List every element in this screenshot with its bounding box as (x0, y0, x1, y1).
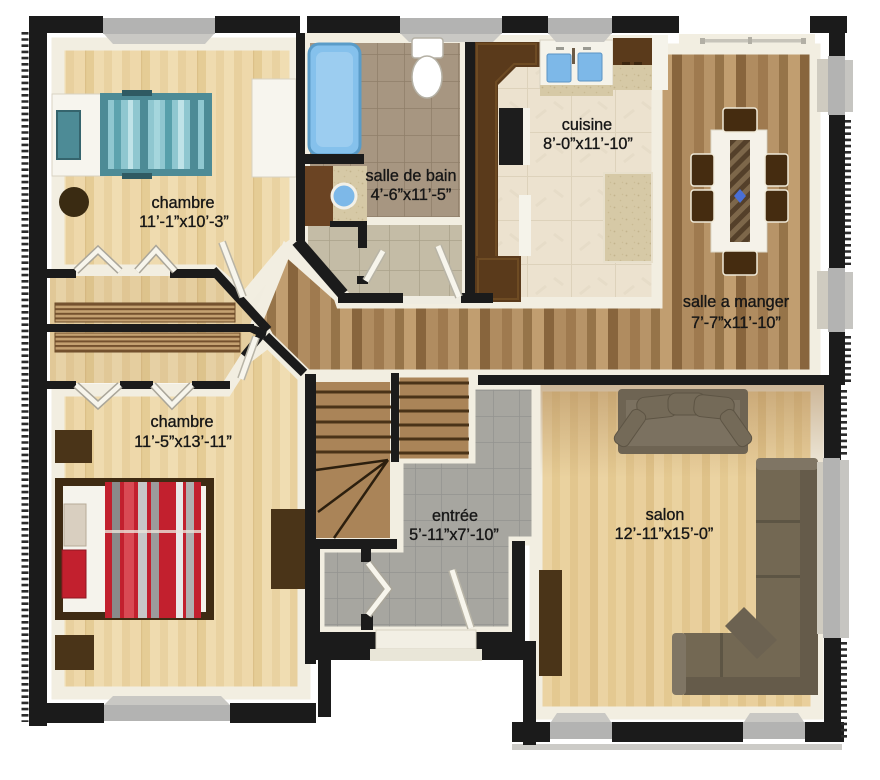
svg-text:5’-11”x7’-10”: 5’-11”x7’-10” (409, 526, 499, 544)
svg-text:salle de bain: salle de bain (366, 167, 457, 185)
svg-text:chambre: chambre (151, 413, 214, 431)
svg-text:salle a manger: salle a manger (683, 293, 790, 311)
svg-text:4’-6”x11’-5”: 4’-6”x11’-5” (371, 186, 452, 204)
svg-text:salon: salon (646, 506, 685, 524)
svg-text:entrée: entrée (432, 507, 478, 525)
svg-text:11’-5”x13’-11”: 11’-5”x13’-11” (134, 433, 231, 451)
svg-text:7’-7”x11’-10”: 7’-7”x11’-10” (691, 314, 781, 332)
svg-text:8’-0”x11’-10”: 8’-0”x11’-10” (543, 135, 633, 153)
svg-text:12’-11”x15’-0”: 12’-11”x15’-0” (615, 525, 714, 543)
svg-text:11’-1”x10’-3”: 11’-1”x10’-3” (139, 213, 229, 231)
svg-text:cuisine: cuisine (562, 116, 612, 134)
svg-text:chambre: chambre (152, 194, 215, 212)
